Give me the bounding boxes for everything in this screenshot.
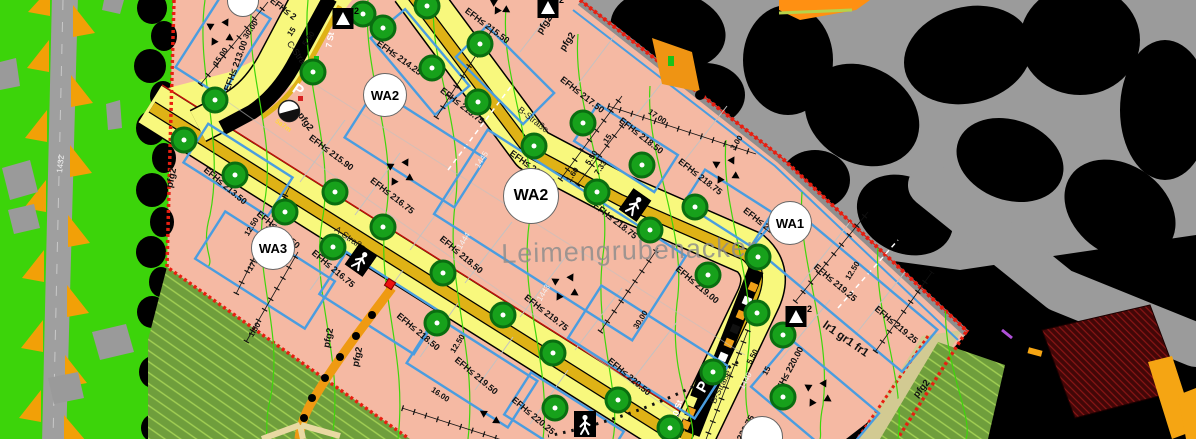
zoning-map-canvas[interactable]: 2 [0,0,1196,439]
basemap-layers: 2 [0,0,1196,439]
